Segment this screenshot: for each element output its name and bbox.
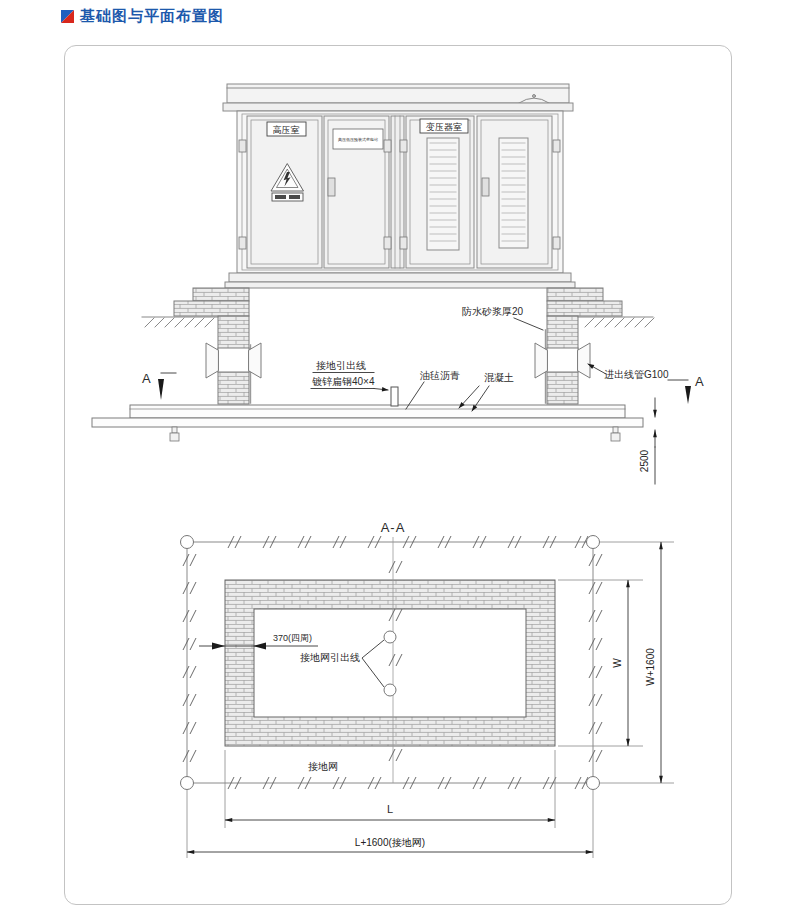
label-asphalt-felt: 油毡沥青 bbox=[419, 370, 460, 381]
technical-drawing: 高压室 变压器室 高压低压预装式变电站 bbox=[0, 0, 800, 920]
louver-vent-left bbox=[427, 138, 459, 250]
label-grid-lead: 接地网引出线 bbox=[300, 652, 360, 663]
door-1 bbox=[247, 116, 322, 268]
section-mark-a-left: A bbox=[142, 371, 151, 386]
foundation-slab bbox=[92, 405, 643, 427]
ground-riser bbox=[391, 387, 398, 406]
anchor-bolts bbox=[170, 427, 620, 441]
cabinet-base bbox=[229, 273, 571, 282]
label-concrete: 混凝土 bbox=[484, 372, 514, 383]
dim-l-plus: L+1600(接地网) bbox=[355, 837, 425, 848]
plan-title: A-A bbox=[381, 520, 406, 535]
label-waterproof-mortar: 防水砂浆厚20 bbox=[462, 306, 524, 317]
section-mark-a-right: A bbox=[695, 374, 704, 389]
label-flat-steel: 镀锌扁钢40×4 bbox=[312, 376, 375, 387]
door-handle-right bbox=[482, 178, 489, 196]
label-hv-room: 高压室 bbox=[273, 125, 300, 135]
dim-2500: 2500 bbox=[639, 449, 650, 472]
conduit-bells bbox=[206, 343, 590, 378]
louver-vent-right bbox=[499, 138, 528, 248]
label-ground-grid: 接地网 bbox=[308, 761, 338, 772]
label-ground-lead: 接地引出线 bbox=[316, 360, 366, 371]
dim-l: L bbox=[387, 803, 393, 815]
foundation-plan: A-A bbox=[181, 520, 675, 858]
dim-wall-thickness: 370(四周) bbox=[273, 633, 312, 643]
catalog-page: 基础图与平面布置图 bbox=[0, 0, 800, 920]
label-transformer-room: 变压器室 bbox=[426, 122, 462, 132]
label-conduit: 进出线管G100 bbox=[604, 369, 669, 380]
door-handle-left bbox=[328, 178, 335, 196]
dim-w-plus: W+1600 bbox=[645, 648, 656, 686]
roof bbox=[223, 84, 573, 111]
cabinet-body: 高压室 变压器室 高压低压预装式变电站 bbox=[225, 111, 575, 288]
dim-w: W bbox=[612, 658, 623, 668]
substation-elevation: 高压室 变压器室 高压低压预装式变电站 bbox=[92, 84, 704, 484]
